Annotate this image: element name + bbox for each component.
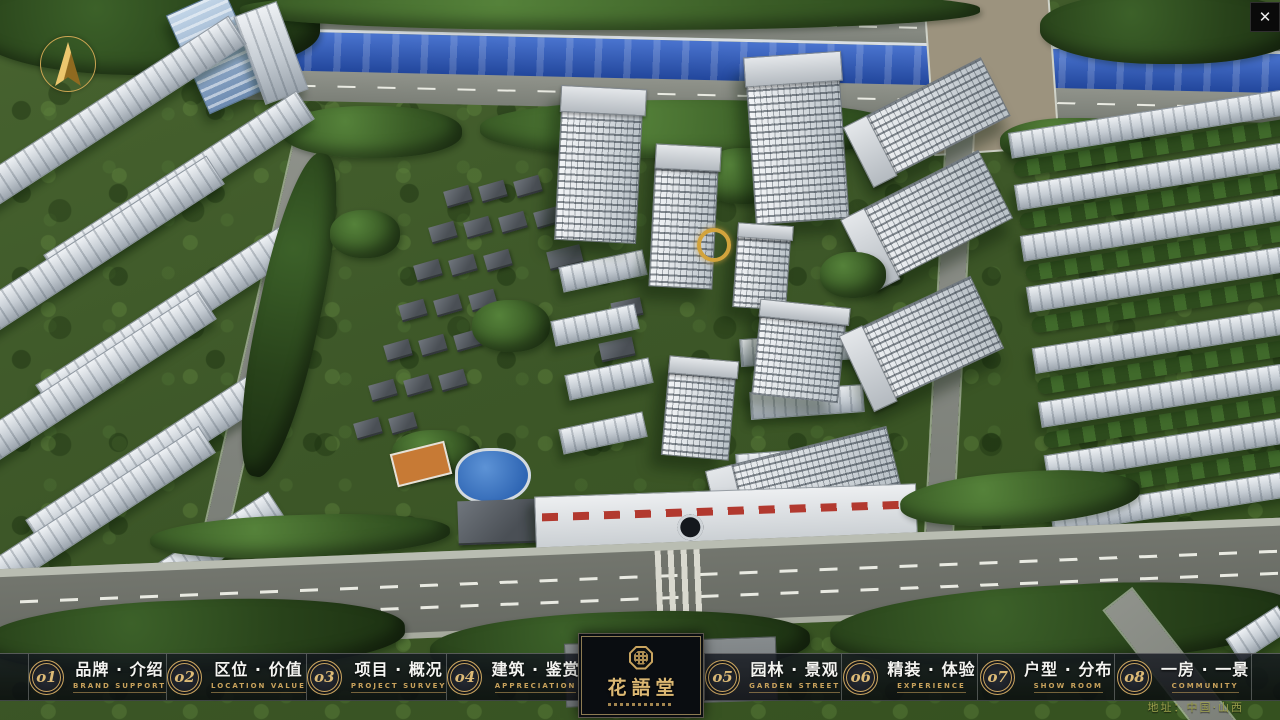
nav-badge: o4 bbox=[447, 660, 482, 695]
seal-emblem-icon bbox=[629, 646, 653, 670]
nav-title: 品牌 · 介绍 bbox=[75, 661, 163, 679]
nav-text: 项目 · 概况 PROJECT SURVEY bbox=[351, 661, 447, 693]
nav-subtitle: LOCATION VALUE bbox=[211, 682, 306, 693]
nav-item-interior[interactable]: o6 精装 · 体验 EXPERIENCE bbox=[841, 654, 978, 700]
navbar-right-group: o5 园林 · 景观 GARDEN STREET o6 精装 · 体验 EXPE… bbox=[704, 654, 1252, 700]
nav-text: 区位 · 价值 LOCATION VALUE bbox=[211, 661, 306, 693]
nav-number: o3 bbox=[314, 668, 334, 686]
tower bbox=[648, 146, 719, 289]
tree-cluster bbox=[330, 210, 400, 258]
nav-badge: o1 bbox=[29, 660, 64, 695]
nav-title: 建筑 · 鉴赏 bbox=[491, 661, 579, 679]
tree-cluster bbox=[472, 300, 550, 352]
nav-subtitle: APPRECIATION bbox=[495, 682, 577, 693]
nav-title: 一房 · 一景 bbox=[1161, 661, 1249, 679]
gold-landscape-feature bbox=[697, 228, 731, 262]
nav-text: 一房 · 一景 COMMUNITY bbox=[1161, 661, 1249, 693]
project-logo-title: 花語堂 bbox=[602, 673, 679, 700]
nav-badge: o7 bbox=[980, 660, 1015, 695]
tower bbox=[744, 55, 849, 225]
compass-needle-icon bbox=[55, 42, 81, 86]
nav-text: 精装 · 体验 EXPERIENCE bbox=[887, 661, 975, 693]
nav-number: o2 bbox=[174, 668, 194, 686]
tower bbox=[751, 301, 847, 404]
close-button[interactable]: ✕ bbox=[1250, 2, 1280, 32]
nav-item-architecture[interactable]: o4 建筑 · 鉴赏 APPRECIATION bbox=[446, 654, 579, 700]
nav-subtitle: BRAND SUPPORT bbox=[73, 682, 166, 693]
nav-badge: o8 bbox=[1117, 660, 1152, 695]
nav-item-project[interactable]: o3 项目 · 概况 PROJECT SURVEY bbox=[306, 654, 447, 700]
nav-item-garden[interactable]: o5 园林 · 景观 GARDEN STREET bbox=[704, 654, 841, 700]
nav-subtitle: EXPERIENCE bbox=[897, 682, 966, 693]
tree-cluster bbox=[820, 252, 886, 298]
tower-roof bbox=[560, 84, 647, 116]
nav-subtitle: SHOW ROOM bbox=[1034, 682, 1103, 693]
nav-text: 品牌 · 介绍 BRAND SUPPORT bbox=[73, 661, 166, 693]
nav-item-views[interactable]: o8 一房 · 一景 COMMUNITY bbox=[1114, 654, 1252, 700]
entrance-plaza bbox=[677, 514, 704, 541]
nav-subtitle: GARDEN STREET bbox=[749, 682, 840, 693]
tower-roof bbox=[743, 51, 842, 87]
gate-pavilion bbox=[457, 499, 538, 546]
nav-text: 户型 · 分布 SHOW ROOM bbox=[1024, 661, 1112, 693]
nav-subtitle: PROJECT SURVEY bbox=[351, 682, 447, 693]
tower-roof bbox=[654, 143, 722, 172]
nav-title: 园林 · 景观 bbox=[751, 661, 839, 679]
project-address: 地址：中国·山西 bbox=[1148, 699, 1245, 715]
nav-badge: o3 bbox=[307, 660, 342, 695]
nav-number: o7 bbox=[987, 668, 1007, 686]
nav-number: o6 bbox=[851, 668, 871, 686]
nav-number: o1 bbox=[36, 668, 56, 686]
logo-subtitle-rule bbox=[608, 703, 674, 706]
project-logo-panel[interactable]: 花語堂 bbox=[578, 633, 704, 718]
nav-text: 建筑 · 鉴赏 APPRECIATION bbox=[491, 661, 579, 693]
navbar-left-group: o1 品牌 · 介绍 BRAND SUPPORT o2 区位 · 价值 LOCA… bbox=[28, 654, 580, 700]
nav-item-brand[interactable]: o1 品牌 · 介绍 BRAND SUPPORT bbox=[28, 654, 166, 700]
nav-subtitle: COMMUNITY bbox=[1172, 682, 1239, 693]
nav-title: 精装 · 体验 bbox=[887, 661, 975, 679]
nav-title: 户型 · 分布 bbox=[1024, 661, 1112, 679]
tower bbox=[554, 88, 644, 244]
nav-badge: o2 bbox=[167, 660, 202, 695]
nav-item-floorplan[interactable]: o7 户型 · 分布 SHOW ROOM bbox=[977, 654, 1114, 700]
nav-title: 区位 · 价值 bbox=[214, 661, 302, 679]
nav-badge: o6 bbox=[843, 660, 878, 695]
tower-roof bbox=[737, 222, 794, 242]
close-icon: ✕ bbox=[1259, 8, 1272, 26]
nav-text: 园林 · 景观 GARDEN STREET bbox=[749, 661, 840, 693]
tree-cluster bbox=[1040, 0, 1280, 64]
tower bbox=[732, 223, 792, 311]
nav-number: o4 bbox=[455, 668, 475, 686]
app-window: ✕ o1 品牌 · 介绍 BRAND SUPPORT o2 区位 · 价值 LO… bbox=[0, 0, 1280, 720]
nav-number: o8 bbox=[1124, 668, 1144, 686]
compass-north-icon bbox=[40, 36, 96, 92]
nav-title: 项目 · 概况 bbox=[355, 661, 443, 679]
nav-item-location[interactable]: o2 区位 · 价值 LOCATION VALUE bbox=[166, 654, 306, 700]
nav-number: o5 bbox=[712, 668, 732, 686]
tower bbox=[661, 357, 737, 461]
shop-signs bbox=[542, 501, 908, 522]
nav-badge: o5 bbox=[705, 660, 740, 695]
